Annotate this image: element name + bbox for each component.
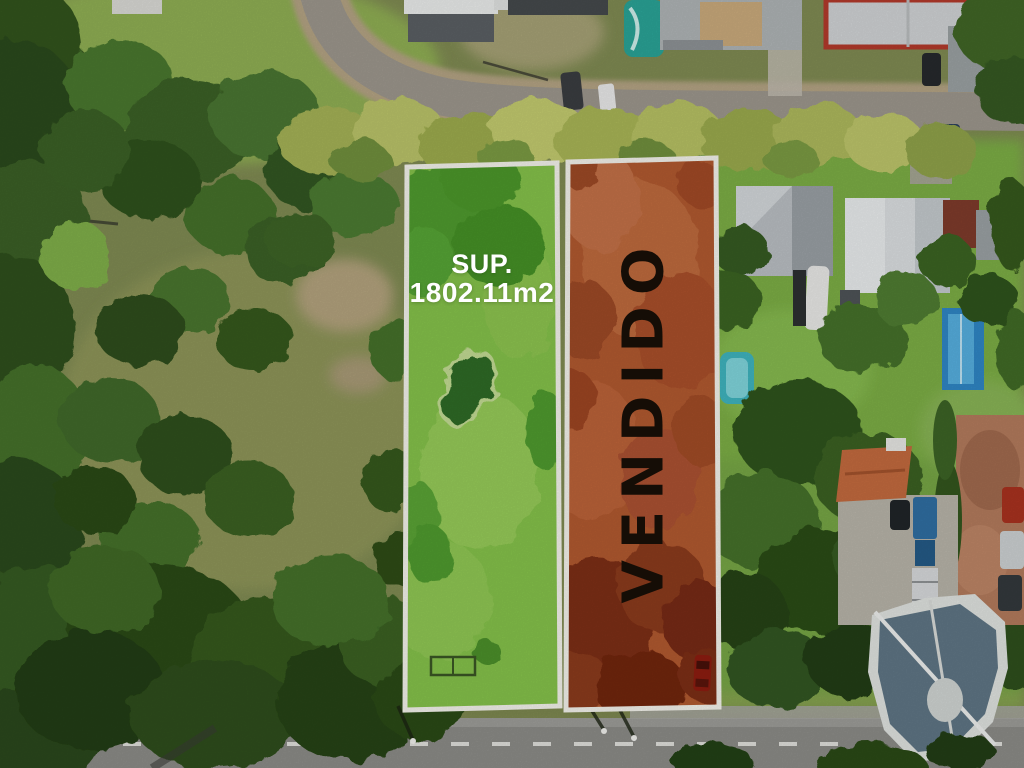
surface-area-value: 1802.11m2 bbox=[402, 278, 562, 307]
aerial-photo bbox=[0, 0, 1024, 768]
lot-sold-status-label: VENDIDO bbox=[612, 237, 677, 604]
photo-grain bbox=[0, 0, 1024, 768]
lot-available-area-label: SUP. 1802.11m2 bbox=[402, 250, 562, 308]
aerial-photo-root: SUP. 1802.11m2 VENDIDO bbox=[0, 0, 1024, 768]
surface-prefix: SUP. bbox=[402, 250, 562, 278]
